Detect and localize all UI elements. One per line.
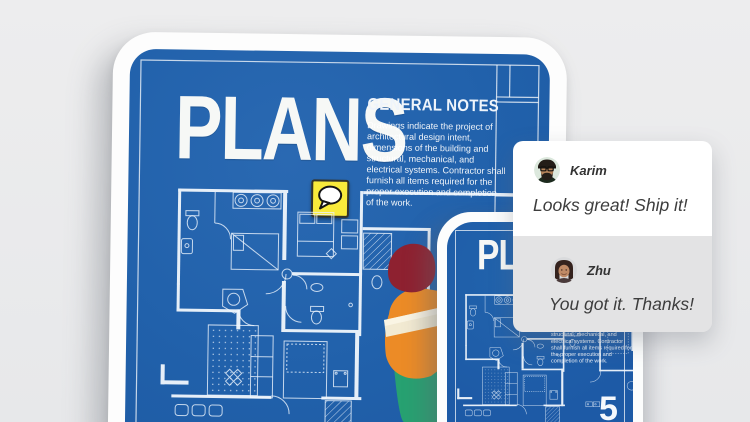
avatar-zhu: [551, 257, 577, 283]
sheet-number: 5: [599, 392, 618, 422]
comment-author: Karim: [570, 163, 607, 178]
comment-message: Looks great! Ship it!: [533, 195, 688, 216]
comment-card-karim[interactable]: Karim Looks great! Ship it!: [513, 141, 712, 236]
hero-illustration: PLANS GENERAL NOTES Drawings indicate th…: [0, 0, 750, 422]
comment-author: Zhu: [587, 263, 611, 278]
comment-message: You got it. Thanks!: [549, 294, 694, 315]
avatar-karim: [534, 157, 560, 183]
comment-card-zhu[interactable]: Zhu You got it. Thanks!: [513, 236, 712, 332]
general-notes-heading: GENERAL NOTES: [367, 96, 507, 115]
comment-thread: Karim Looks great! Ship it! Zh: [513, 141, 712, 332]
